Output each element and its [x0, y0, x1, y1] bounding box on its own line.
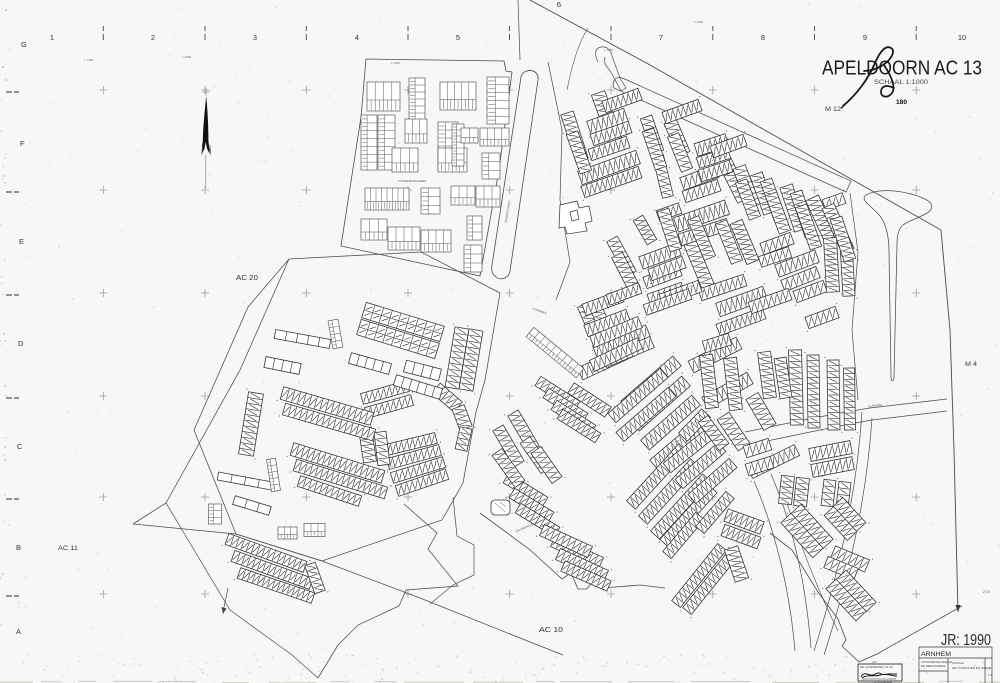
- svg-text:HET KADASTER EN OPENB.: HET KADASTER EN OPENB.: [952, 666, 992, 670]
- svg-text:10: 10: [958, 33, 966, 42]
- svg-text:AC 20: AC 20: [236, 275, 258, 282]
- svg-text:M 12: M 12: [825, 107, 842, 113]
- svg-text:JR: 1990: JR: 1990: [941, 632, 991, 649]
- svg-text:274: 274: [983, 589, 990, 594]
- svg-text:F: F: [20, 139, 25, 148]
- svg-text:DE LANDMETER, 31-12: DE LANDMETER, 31-12: [860, 665, 893, 669]
- svg-text:L 4088: L 4088: [694, 20, 703, 24]
- svg-text:6: 6: [557, 0, 561, 9]
- svg-text:SCHAAL: SCHAAL: [952, 661, 964, 665]
- svg-text:211: 211: [872, 660, 877, 664]
- svg-text:C: C: [17, 442, 23, 451]
- svg-text:E: E: [19, 237, 24, 246]
- svg-text:L 4088: L 4088: [84, 58, 93, 62]
- svg-text:B: B: [16, 543, 21, 552]
- svg-text:180: 180: [896, 100, 908, 106]
- svg-text:1: 1: [50, 33, 54, 42]
- svg-text:3: 3: [253, 33, 257, 42]
- svg-text:4: 4: [355, 33, 359, 42]
- svg-text:AC 10: AC 10: [539, 627, 563, 634]
- svg-text:A: A: [16, 627, 21, 636]
- svg-text:7: 7: [659, 33, 663, 42]
- svg-text:1:1: 1:1: [988, 673, 993, 677]
- svg-text:2: 2: [151, 33, 155, 42]
- svg-text:M 4: M 4: [965, 362, 978, 368]
- svg-text:5: 5: [456, 33, 460, 42]
- svg-text:TOTDENBORGHWEG: TOTDENBORGHWEG: [398, 179, 426, 183]
- svg-text:ARNHEM: ARNHEM: [921, 652, 951, 658]
- svg-text:L 4088: L 4088: [182, 55, 191, 59]
- svg-text:SCHAAL 1:1000: SCHAAL 1:1000: [874, 79, 928, 86]
- svg-text:L 4088: L 4088: [604, 48, 613, 52]
- svg-text:L 4088: L 4088: [391, 61, 400, 65]
- svg-text:G: G: [21, 40, 27, 49]
- svg-text:AC 11: AC 11: [58, 546, 79, 552]
- svg-text:8: 8: [761, 33, 765, 42]
- svg-text:9: 9: [863, 33, 867, 42]
- svg-text:DE BEWAARDER,: DE BEWAARDER,: [921, 664, 946, 668]
- svg-text:APELDOORN AC 13: APELDOORN AC 13: [822, 58, 982, 80]
- svg-text:D: D: [18, 339, 24, 348]
